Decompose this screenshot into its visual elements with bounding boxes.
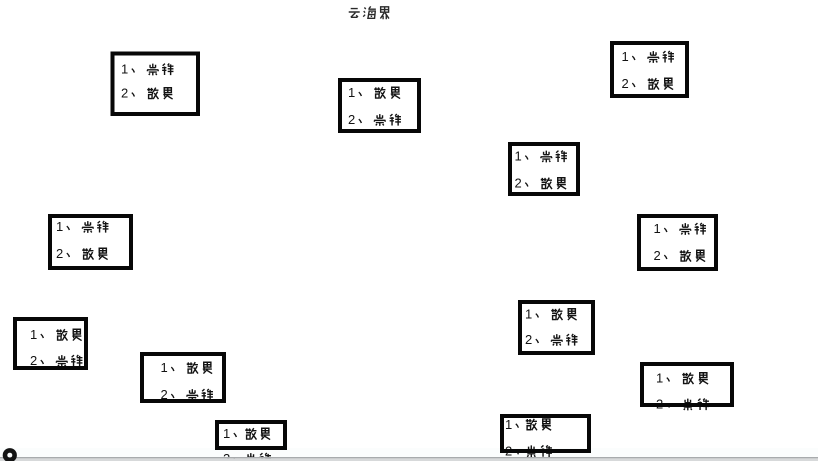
- svg-text:1: 1: [223, 426, 230, 441]
- svg-text:2: 2: [515, 176, 522, 191]
- svg-text:1: 1: [656, 371, 663, 386]
- svg-text:2: 2: [622, 76, 629, 91]
- svg-text:2: 2: [348, 112, 355, 127]
- svg-text:2: 2: [121, 86, 128, 101]
- svg-text:1: 1: [654, 221, 661, 236]
- svg-text:1: 1: [56, 219, 63, 234]
- svg-text:1: 1: [348, 85, 355, 100]
- svg-text:1: 1: [121, 62, 128, 77]
- svg-text:2: 2: [525, 332, 532, 347]
- svg-text:1: 1: [30, 327, 37, 342]
- svg-text:1: 1: [515, 149, 522, 164]
- svg-text:1: 1: [161, 360, 168, 375]
- svg-text:2: 2: [30, 353, 37, 368]
- svg-text:1: 1: [622, 49, 629, 64]
- svg-text:1: 1: [505, 417, 512, 432]
- svg-text:2: 2: [56, 246, 63, 261]
- svg-text:1: 1: [525, 307, 532, 322]
- svg-text:2: 2: [654, 248, 661, 263]
